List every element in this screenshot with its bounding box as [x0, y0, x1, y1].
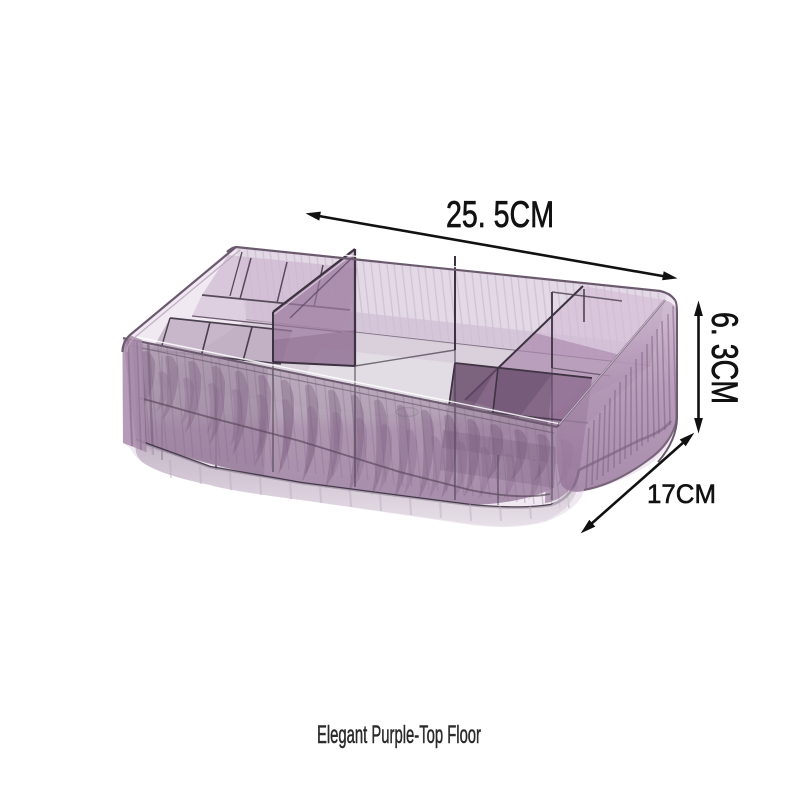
svg-text:6. 3CM: 6. 3CM — [704, 312, 745, 404]
svg-text:Elegant Purple-Top Floor: Elegant Purple-Top Floor — [317, 721, 481, 749]
svg-text:17CM: 17CM — [647, 479, 716, 509]
svg-text:25. 5CM: 25. 5CM — [446, 194, 554, 235]
